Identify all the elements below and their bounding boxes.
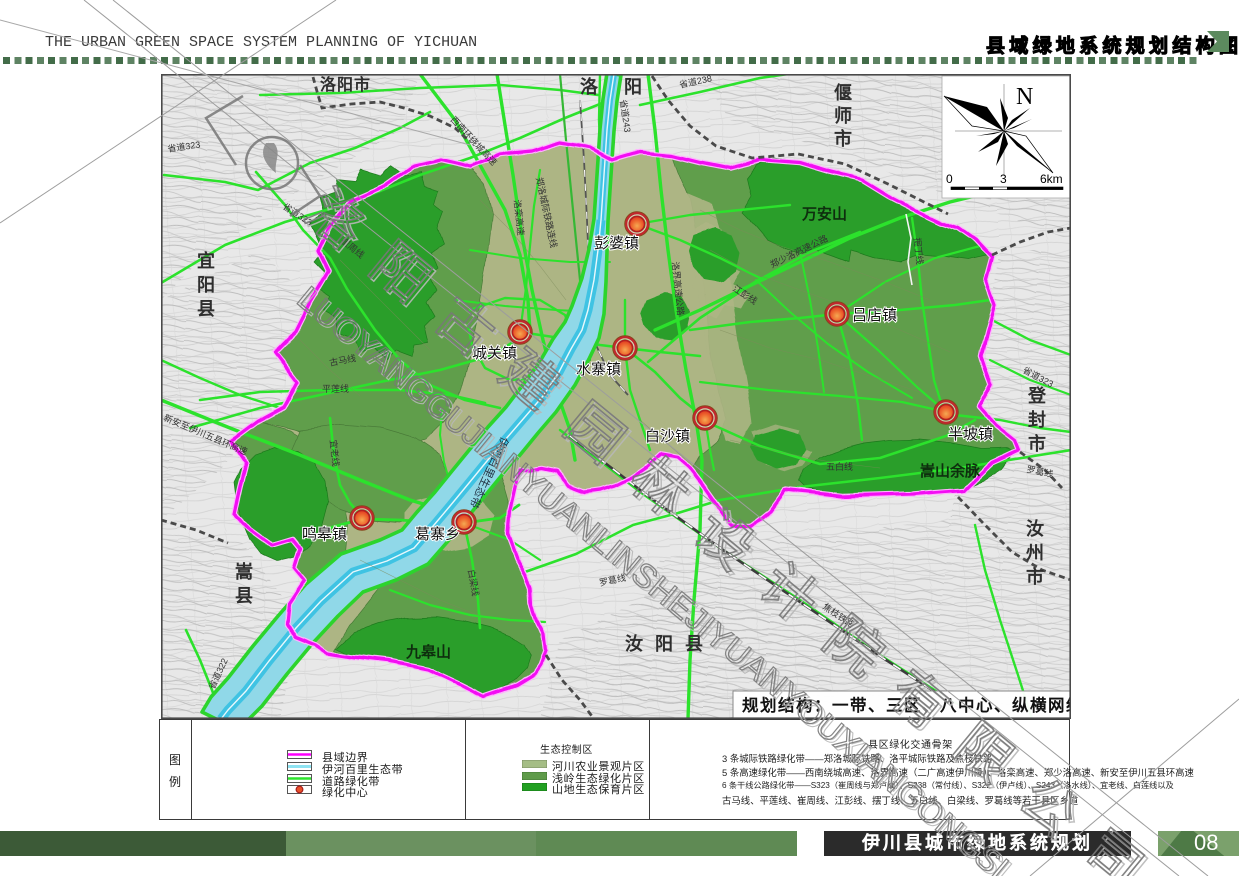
svg-text:洛阳古建园林设计院有限公司: 洛阳古建园林设计院有限公司 [294, 177, 1176, 876]
svg-text:LUOYANGGUJIANYUANLINSHEJIYUANY: LUOYANGGUJIANYUANLINSHEJIYUANYOUXIANGONG… [291, 279, 1017, 876]
